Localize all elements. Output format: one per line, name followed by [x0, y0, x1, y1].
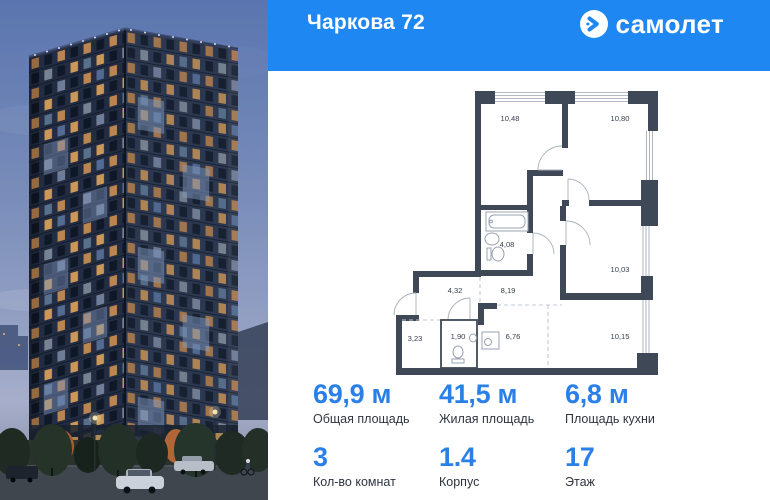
building-photo [0, 0, 268, 500]
stat-value: 17 [565, 444, 691, 471]
stat-value: 6,8 м [565, 381, 691, 408]
stat-label: Кол-во комнат [313, 475, 439, 489]
stat-value: 41,5 м [439, 381, 565, 408]
app-header: Чаркова 72 самолет [268, 0, 770, 71]
stat-label: Общая площадь [313, 412, 439, 426]
info-panel: Чаркова 72 самолет [268, 0, 770, 500]
room-area-label: 6,76 [506, 332, 521, 341]
room-area-label: 8,19 [501, 286, 516, 295]
room-area-label: 10,48 [500, 114, 519, 123]
stat-label: Жилая площадь [439, 412, 565, 426]
stat-living-area: 41,5 м Жилая площадь [439, 381, 565, 426]
stat-value: 1.4 [439, 444, 565, 471]
stat-kitchen-area: 6,8 м Площадь кухни [565, 381, 691, 426]
page-title: Чаркова 72 [307, 11, 425, 35]
stat-label: Корпус [439, 475, 565, 489]
brand-logo: самолет [580, 10, 725, 38]
stat-label: Этаж [565, 475, 691, 489]
stat-value: 69,9 м [313, 381, 439, 408]
stats-row-details: 3 Кол-во комнат 1.4 Корпус 17 Этаж [313, 444, 753, 489]
stats-row-areas: 69,9 м Общая площадь 41,5 м Жилая площад… [313, 381, 753, 426]
stat-label: Площадь кухни [565, 412, 691, 426]
stat-total-area: 69,9 м Общая площадь [313, 381, 439, 426]
stat-building: 1.4 Корпус [439, 444, 565, 489]
floor-plan: 10,48 10,80 4,08 10,03 4,32 8,19 3,23 1,… [386, 86, 658, 380]
room-area-label: 10,03 [610, 265, 629, 274]
stat-rooms-count: 3 Кол-во комнат [313, 444, 439, 489]
brand-name: самолет [616, 10, 725, 38]
room-area-label: 4,32 [448, 286, 463, 295]
room-area-label: 10,15 [610, 332, 629, 341]
far-trees [238, 322, 268, 420]
samolet-logo-icon [580, 10, 608, 38]
listing-card: Чаркова 72 самолет [0, 0, 770, 500]
room-area-label: 4,08 [500, 240, 515, 249]
room-area-label: 1,90 [451, 332, 466, 341]
room-area-label: 10,80 [610, 114, 629, 123]
stat-value: 3 [313, 444, 439, 471]
stat-floor: 17 Этаж [565, 444, 691, 489]
tower [29, 29, 238, 465]
room-area-label: 3,23 [408, 334, 423, 343]
